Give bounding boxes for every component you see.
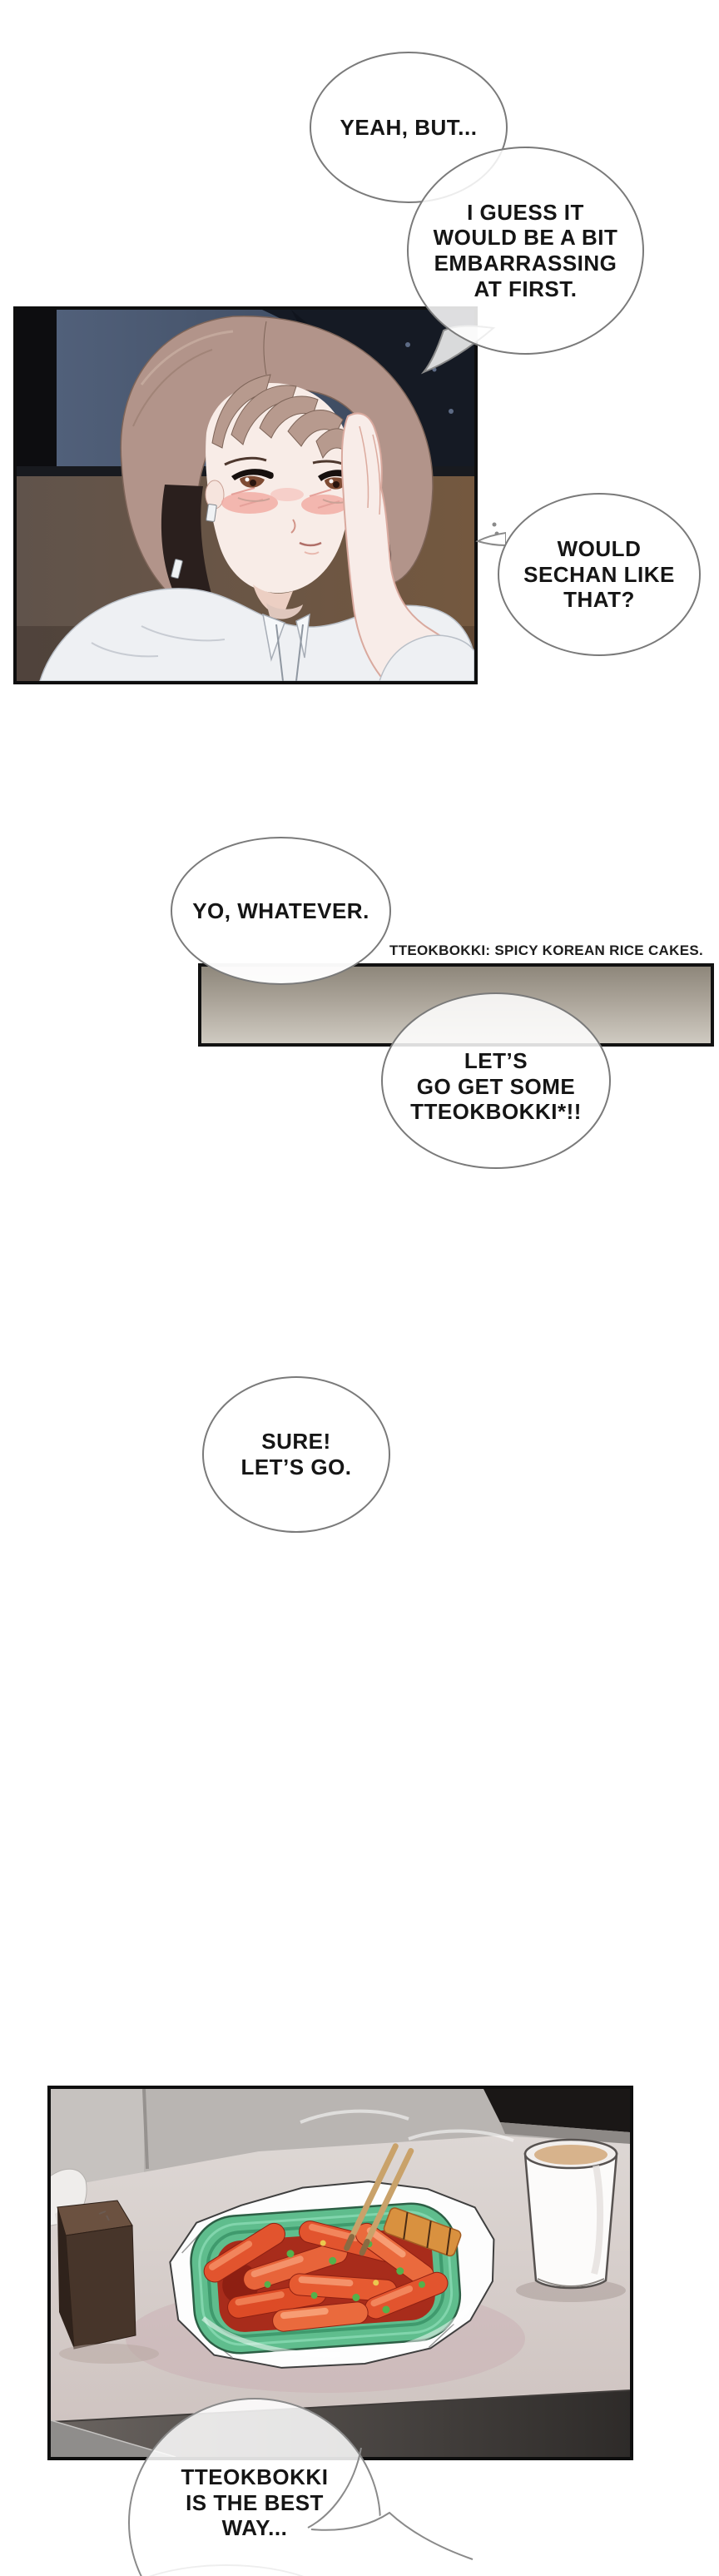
speech-tail [473,518,506,548]
speech-text: LET’S GO GET SOME TTEOKBOKKI*!! [410,1037,582,1125]
webtoon-page: YEAH, BUT... [0,0,719,2576]
speech-text: YEAH, BUT... [340,115,478,141]
speech-text: SURE! LET’S GO. [240,1429,351,1479]
drink [534,2145,607,2165]
translator-note-text: TTEOKBOKKI: SPICY KOREAN RICE CAKES. [389,942,703,958]
speech-bubble-would-sechan: WOULD SECHAN LIKE THAT? [498,493,701,656]
speech-text: I GUESS IT WOULD BE A BIT EMBARRASSING A… [434,200,618,302]
panel-girl-night [13,306,478,684]
speech-bubble-i-guess: I GUESS IT WOULD BE A BIT EMBARRASSING A… [407,147,644,355]
girl-illustration [17,310,474,681]
speech-bubble-sure-lets-go: SURE! LET’S GO. [202,1376,390,1533]
food-illustration [51,2089,630,2457]
speech-bubble-yo-whatever: YO, WHATEVER. [171,837,391,985]
speech-bubble-lets-go-get: LET’S GO GET SOME TTEOKBOKKI*!! [381,992,611,1169]
speech-tail [291,2439,499,2576]
speech-text: YO, WHATEVER. [192,898,369,924]
earring [206,504,217,521]
speech-text: WOULD SECHAN LIKE THAT? [523,536,675,613]
panel-tteokbokki-table [47,2086,633,2460]
